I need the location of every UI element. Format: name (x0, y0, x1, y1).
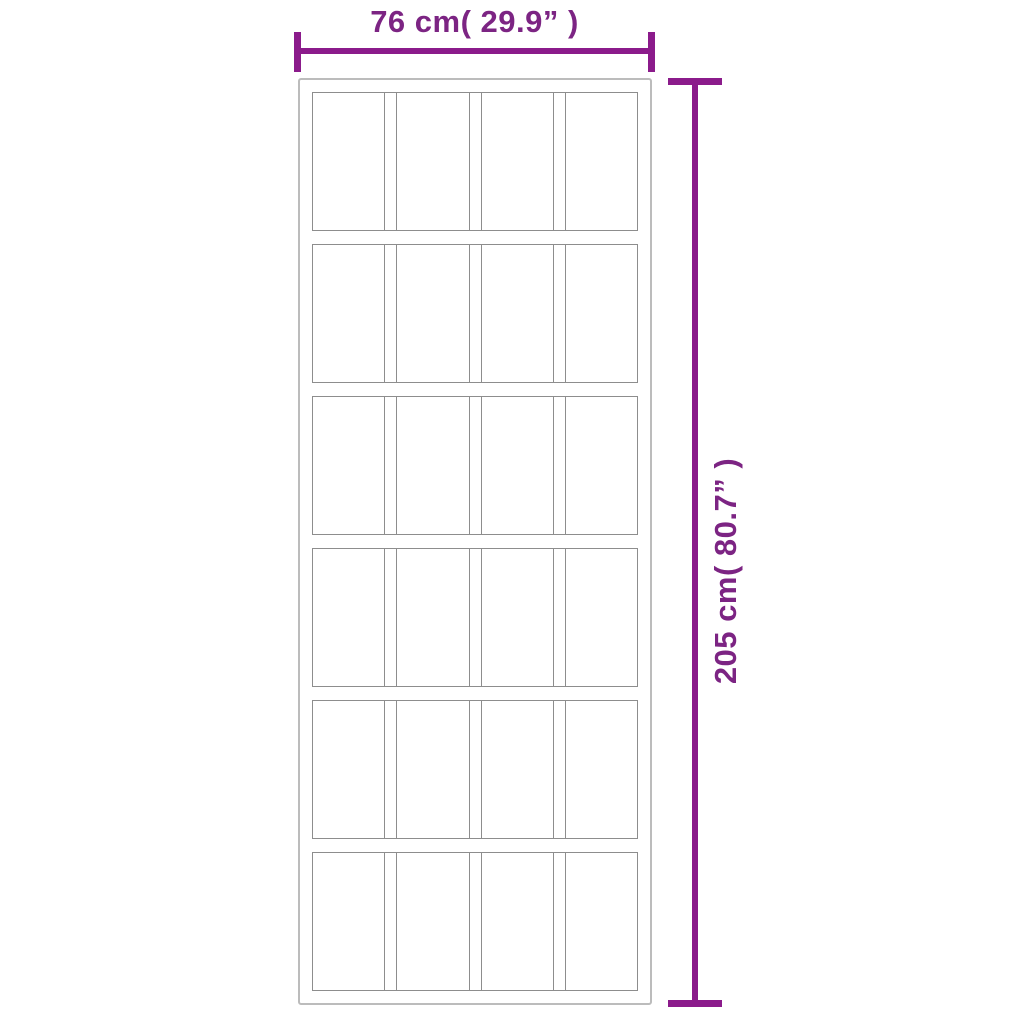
height-dimension-bar (692, 78, 698, 1007)
door-panel (481, 397, 554, 534)
door-panel (396, 701, 469, 838)
door-panel (313, 397, 385, 534)
height-dimension-label: 205 cm( 80.7” ) (708, 458, 744, 684)
door-panel (565, 853, 637, 990)
door-panel (396, 245, 469, 382)
door-panel (313, 245, 385, 382)
width-dimension-bar (294, 48, 655, 54)
door-panel (481, 93, 554, 230)
door-row (312, 852, 638, 991)
door-row (312, 396, 638, 535)
width-dimension-line (294, 32, 655, 72)
door-panel (481, 853, 554, 990)
door-panel (313, 549, 385, 686)
door-panel (565, 549, 637, 686)
door-panel (565, 93, 637, 230)
door-grid (312, 92, 638, 991)
door-diagram (298, 78, 652, 1005)
width-tick-right-icon (648, 32, 655, 72)
door-row (312, 244, 638, 383)
door-row (312, 700, 638, 839)
door-panel (481, 701, 554, 838)
height-tick-bottom-icon (668, 1000, 722, 1007)
door-panel (313, 853, 385, 990)
door-panel (481, 245, 554, 382)
door-panel (396, 93, 469, 230)
diagram-canvas: 76 cm( 29.9” ) 205 cm( 80.7” ) (0, 0, 1024, 1024)
door-panel (396, 549, 469, 686)
door-panel (565, 245, 637, 382)
door-panel (565, 397, 637, 534)
door-panel (481, 549, 554, 686)
door-panel (313, 701, 385, 838)
door-panel (396, 853, 469, 990)
door-panel (313, 93, 385, 230)
door-panel (396, 397, 469, 534)
door-row (312, 92, 638, 231)
door-panel (565, 701, 637, 838)
door-row (312, 548, 638, 687)
